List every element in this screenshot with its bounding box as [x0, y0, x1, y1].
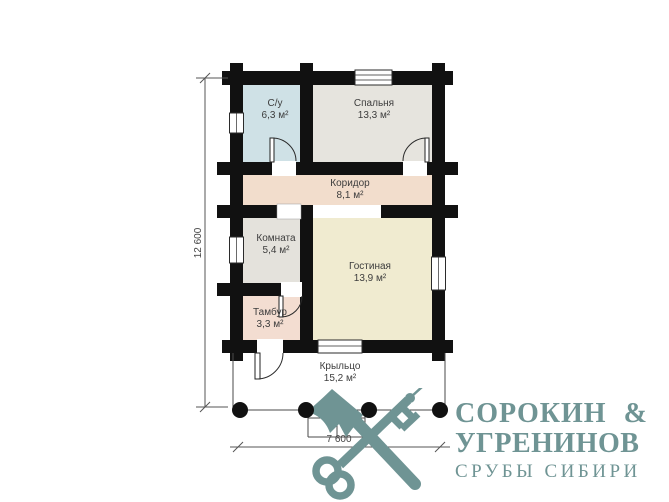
door-arc-entry	[257, 353, 283, 379]
room-name: Крыльцо	[300, 361, 380, 373]
logo-name-2: УГРЕНИНОВ	[455, 429, 648, 459]
key-pommel	[405, 393, 415, 403]
room-name: Комната	[236, 233, 316, 245]
dimension-width-label: 7 600	[309, 434, 369, 445]
room-name: Коридор	[310, 178, 390, 190]
logo-tagline: СРУБЫ СИБИРИ	[455, 461, 648, 483]
logo-name-1: СОРОКИН	[455, 399, 607, 429]
room-name: Тамбур	[230, 307, 310, 319]
door-opening-komnata	[277, 204, 301, 219]
room-area: 8,1 м²	[310, 190, 390, 202]
floor-plan-page: С/у 6,3 м² Спальня 13,3 м² Коридор 8,1 м…	[0, 0, 669, 502]
window-bedroom-top	[355, 70, 392, 85]
door-leaf-bedroom	[425, 138, 429, 162]
room-label-living: Гостиная 13,9 м²	[330, 261, 410, 284]
room-label-komnata: Комната 5,4 м²	[236, 233, 316, 256]
door-leaf-entry	[255, 353, 260, 379]
room-name: С/у	[235, 98, 315, 110]
porch-column	[298, 402, 314, 418]
door-opening-bedroom	[403, 161, 427, 176]
door-leaf-su	[270, 138, 274, 162]
room-area: 13,9 м²	[330, 273, 410, 285]
room-name: Гостиная	[330, 261, 410, 273]
axe-head	[307, 389, 363, 437]
porch-column	[361, 402, 377, 418]
room-label-corridor: Коридор 8,1 м²	[310, 178, 390, 201]
door-arc-su	[272, 138, 296, 161]
room-area: 15,2 м²	[300, 373, 380, 385]
key-bow-ring	[329, 474, 351, 496]
room-label-tambour: Тамбур 3,3 м²	[230, 307, 310, 330]
room-area: 5,4 м²	[236, 245, 316, 257]
room-area: 13,3 м²	[334, 110, 414, 122]
room-label-bedroom: Спальня 13,3 м²	[334, 98, 414, 121]
window-living-bottom	[318, 340, 362, 353]
door-arc-bedroom	[403, 138, 427, 161]
company-logo: СОРОКИН & УГРЕНИНОВ СРУБЫ СИБИРИ	[455, 399, 648, 483]
door-opening-entry	[257, 339, 283, 354]
door-opening-tambour	[281, 282, 302, 297]
room-area: 6,3 м²	[235, 110, 315, 122]
window-living-right	[432, 257, 446, 290]
room-label-su: С/у 6,3 м²	[235, 98, 315, 121]
room-label-porch: Крыльцо 15,2 м²	[300, 361, 380, 384]
door-opening-su	[272, 161, 296, 176]
logo-line-1: СОРОКИН &	[455, 399, 648, 429]
porch-column	[432, 402, 448, 418]
porch-column	[232, 402, 248, 418]
logo-ampersand: &	[624, 399, 648, 429]
room-name: Спальня	[334, 98, 414, 110]
dimension-height-label: 12 600	[193, 211, 207, 275]
room-area: 3,3 м²	[230, 319, 310, 331]
